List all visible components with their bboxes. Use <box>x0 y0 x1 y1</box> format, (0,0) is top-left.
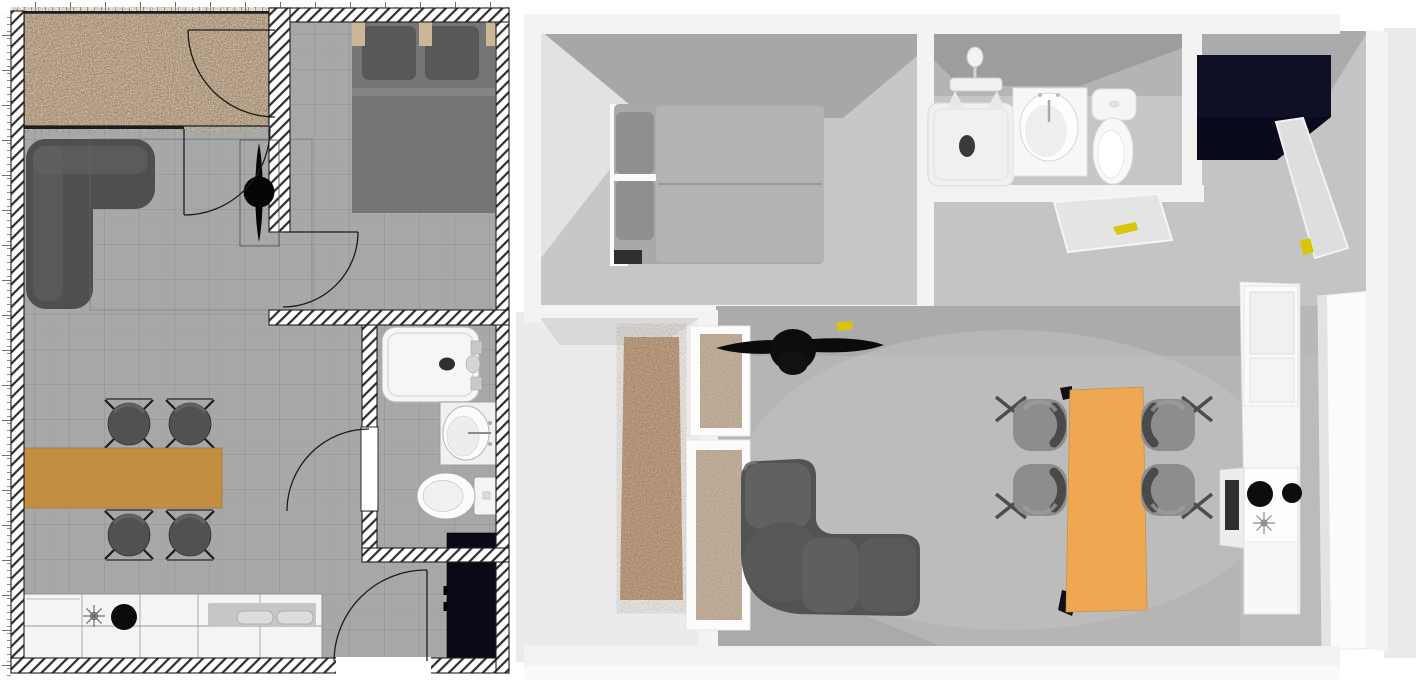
dining-chair-2d[interactable] <box>166 399 214 449</box>
outer-wall-top-3d <box>524 14 1340 34</box>
shower-3d[interactable] <box>928 103 1014 186</box>
base-cabinet-3d[interactable] <box>1244 542 1298 614</box>
view-3d-canvas[interactable] <box>512 0 1416 680</box>
toilet-2d[interactable] <box>417 473 497 519</box>
dining-chair-2d[interactable] <box>166 510 214 560</box>
entrance-opening <box>336 657 431 674</box>
kitchen-sink-2d[interactable] <box>208 603 316 626</box>
washbasin-2d[interactable] <box>440 402 496 465</box>
entry-partition-wall <box>24 126 184 129</box>
outer-wall-bottom-3d <box>524 646 1340 666</box>
dining-table-3d[interactable] <box>1058 386 1147 616</box>
hall-carpet-3d[interactable] <box>620 337 683 600</box>
view-3d-panel[interactable] <box>512 0 1416 680</box>
door-frame-lower[interactable] <box>686 440 750 630</box>
bottom-margin <box>524 666 1340 680</box>
cooktop-3d[interactable] <box>1244 468 1302 542</box>
entry-top-wall <box>24 11 269 14</box>
home-design-workspace <box>0 0 1416 680</box>
double-bed-3d[interactable] <box>610 104 824 266</box>
dining-table-2d[interactable] <box>22 448 222 508</box>
dining-chair-2d[interactable] <box>105 399 153 449</box>
kitchen-counter-2d[interactable] <box>24 594 322 660</box>
bathtub-2d[interactable] <box>382 327 482 402</box>
double-bed-2d[interactable] <box>352 18 496 213</box>
ruler-left <box>0 11 11 680</box>
toilet-3d[interactable] <box>1092 89 1136 184</box>
floor-plan-2d-panel[interactable] <box>0 0 512 680</box>
oven-3d[interactable] <box>1220 468 1244 548</box>
washbasin-3d[interactable] <box>1013 88 1087 176</box>
floor-plan-2d-canvas[interactable] <box>0 0 512 680</box>
dining-chair-2d[interactable] <box>105 510 153 560</box>
exterior-ground <box>1384 28 1416 658</box>
outer-wall-right-3d <box>1366 30 1388 652</box>
